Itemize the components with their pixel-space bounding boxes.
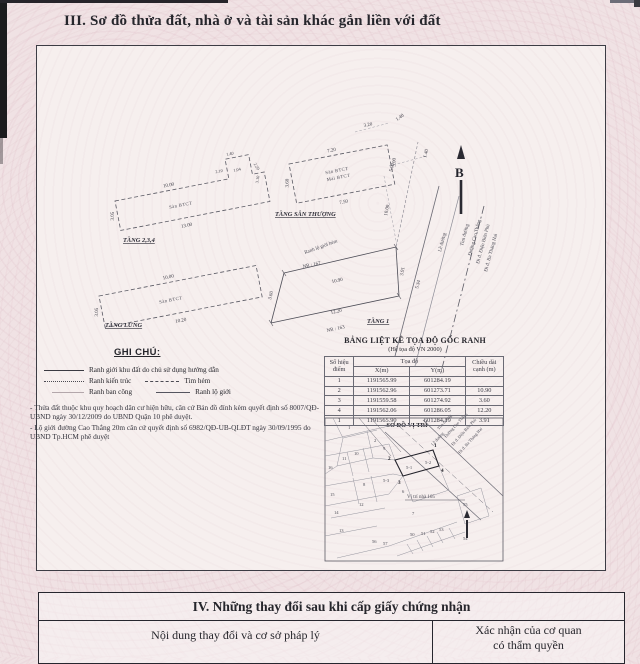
cell-length: 3.60 — [465, 396, 503, 406]
dim-label: 7.20 — [327, 148, 337, 155]
cell-x: 1191562.96 — [354, 386, 410, 396]
north-arrow: B — [455, 145, 465, 214]
plan-san-thuong: 7.20 7.50 3.60 3.00 Sàn BTCT Mái BTCT — [280, 137, 405, 216]
col-header-point: Số hiệu điểm — [325, 357, 354, 377]
material-label: Sàn BTCT — [159, 296, 183, 305]
plan-tang234: 10.00 1.40 2.10 1.04 2.29 3.10 13.00 3.0… — [102, 145, 272, 242]
legend-heading: GHI CHÚ: — [114, 347, 160, 358]
dim-label: 3.05 — [111, 211, 116, 220]
north-letter: B — [455, 165, 464, 180]
cell-point: 1 — [325, 376, 354, 386]
section3-title: III. Sơ đồ thửa đất, nhà ở và tài sản kh… — [64, 13, 484, 30]
scan-edge-top — [0, 0, 228, 3]
confirm-line-2: có thẩm quyền — [433, 638, 624, 653]
map-subject-parcel — [395, 450, 439, 476]
cell-point: 4 — [325, 406, 354, 416]
dim-label: 12.20 — [330, 309, 343, 316]
coordinate-table-subtitle: (Hệ tọa độ VN 2000) — [324, 346, 506, 353]
legend-item-architecture-alley: Ranh kiến trúc Tim hẻm — [44, 377, 324, 385]
legend-label: Ranh lộ giới — [195, 388, 231, 396]
map-point: 4 — [441, 468, 444, 474]
table-row: 3 1191559.58 601274.92 3.60 — [325, 396, 504, 406]
thin-line-sample — [156, 392, 190, 393]
plan-san-thuong-outline — [289, 145, 395, 203]
cell-length: 12.20 — [465, 406, 503, 416]
location-map: SƠ ĐỒ VỊ TRÍ — [325, 411, 503, 561]
map-parcel-number: 12 — [359, 502, 364, 507]
parcel-diagram-canvas: 10.00 1.40 2.10 1.04 2.29 3.10 13.00 3.0… — [37, 46, 605, 570]
scan-corner-mark — [634, 0, 640, 7]
scan-edge-left-fade — [0, 138, 3, 164]
note-row: - Lộ giới đường Cao Thắng 20m căn cứ quy… — [30, 423, 320, 442]
map-parcel-number: 51 — [421, 531, 426, 536]
plan-tang234-name: TẦNG 2,3,4 — [123, 236, 155, 244]
map-curb-label: Lề đường — [430, 430, 445, 446]
cell-y: 601286.05 — [410, 406, 466, 416]
dim-label: 1.40 — [395, 113, 405, 122]
col-header-length: Chiều dài cạnh (m) — [465, 357, 503, 377]
col-header-coords: Tọa độ — [354, 357, 465, 367]
col-header-x: X(m) — [354, 366, 410, 376]
faint-line-sample — [52, 392, 84, 393]
dim-label: 5.00 — [389, 162, 396, 172]
scan-edge-left — [0, 0, 7, 138]
cell-point: 3 — [325, 396, 354, 406]
plan-tang1-name: TẦNG 1 — [367, 317, 389, 325]
legend-item-boundary: Ranh giới khu đất do chủ sử dụng hướng d… — [44, 366, 324, 374]
map-parcel-number: 55 — [463, 502, 468, 507]
dim-label: 3.60 — [268, 290, 275, 300]
dim-label: 13.00 — [181, 223, 193, 230]
map-road — [359, 418, 503, 520]
plan-tang-lung-name: TẦNG LỬNG — [105, 321, 142, 329]
legend-block: Ranh giới khu đất do chủ sử dụng hướng d… — [44, 366, 324, 400]
coordinate-table-title: BẢNG LIỆT KÊ TỌA ĐỘ GỐC RANH — [324, 336, 506, 345]
dim-label: 10.90 — [331, 278, 344, 285]
cell-length: 3.91 — [465, 416, 503, 426]
dim-label: 1.40 — [423, 148, 430, 158]
plan-san-thuong-name: TẦNG SÂN THƯỢNG — [275, 210, 336, 218]
dim-label: 10.00 — [162, 274, 174, 281]
setback-ties — [355, 123, 427, 246]
legend-label: Ranh kiến trúc — [89, 377, 131, 385]
map-parcel-number: 57 — [383, 541, 388, 546]
col-header-y: Y(m) — [410, 366, 466, 376]
parcel-right-edge — [396, 247, 399, 296]
dim-label: 3.91 — [400, 266, 407, 276]
curb-label: Lề đường — [438, 232, 448, 252]
solid-line-sample — [44, 370, 84, 371]
map-parcel-number: 50 — [410, 532, 415, 537]
map-parcel-number: 52 — [430, 529, 435, 534]
cell-y: 601274.92 — [410, 396, 466, 406]
map-parcel-number: 6 — [402, 489, 405, 494]
table-row: 4 1191562.06 601286.05 12.20 — [325, 406, 504, 416]
cell-x: 1191565.90 — [354, 416, 410, 426]
neighbor-house-167: NR : 167 — [302, 261, 321, 270]
dim-label: 3.60 — [285, 178, 290, 187]
north-arrow-head — [457, 145, 465, 159]
dim-label: 5.34 — [415, 279, 422, 289]
cell-x: 1191565.99 — [354, 376, 410, 386]
dim-label: 2.10 — [215, 168, 223, 174]
map-parcel-number: 5-2 — [425, 460, 432, 465]
confirm-line-1: Xác nhận của cơ quan — [433, 623, 624, 638]
section4-box: IV. Những thay đổi sau khi cấp giấy chứn… — [38, 592, 625, 664]
cell-x: 1191559.58 — [354, 396, 410, 406]
section4-title: IV. Những thay đổi sau khi cấp giấy chứn… — [39, 593, 624, 621]
cell-length — [465, 376, 503, 386]
map-parcel-number: 10 — [354, 451, 359, 456]
cell-y: 601284.19 — [410, 416, 466, 426]
note-planning: - Thửa đất thuộc khu quy hoạch dân cư hi… — [30, 403, 320, 422]
legend-label: Ranh ban công — [89, 388, 132, 396]
section4-col-change: Nội dung thay đổi và cơ sở pháp lý — [39, 621, 433, 664]
map-parcel-number: 9 — [383, 446, 386, 451]
parcel-top-edge — [284, 247, 396, 273]
legend-label: Tim hẻm — [184, 377, 210, 385]
dim-label: 3.05 — [95, 307, 100, 316]
map-parcel-number: 16 — [328, 465, 333, 470]
dim-label: 1.04 — [233, 166, 242, 173]
boundary-caption: Ranh lộ giới hẻm — [304, 239, 338, 256]
cell-point: 2 — [325, 386, 354, 396]
map-parcel-number: 11 — [342, 456, 347, 461]
dim-label: 7.50 — [339, 199, 349, 206]
plan-tang234-outline — [111, 152, 270, 230]
alley-boundary-line — [396, 142, 418, 247]
dim-label: 10.00 — [384, 204, 391, 217]
map-parcel-number: 53 — [439, 527, 444, 532]
dashed-line-sample — [145, 381, 179, 382]
map-parcel-number: 15 — [330, 492, 335, 497]
coordinate-table-block: BẢNG LIỆT KÊ TỌA ĐỘ GỐC RANH (Hệ tọa độ … — [324, 336, 506, 426]
parcel-diagram-box: 10.00 1.40 2.10 1.04 2.29 3.10 13.00 3.0… — [36, 45, 606, 571]
material-label: Sàn BTCT — [169, 201, 193, 210]
map-parcel-number: 14 — [334, 510, 339, 515]
dim-label: 10.00 — [163, 182, 175, 189]
map-site-label: Vị trí nhà 165 — [407, 495, 435, 500]
map-parcel-number: 7 — [412, 511, 415, 516]
cell-y: 601273.71 — [410, 386, 466, 396]
map-parcel-number: 5-1 — [406, 465, 413, 470]
map-parcel-number: 13 — [339, 528, 344, 533]
legend-notes: - Thửa đất thuộc khu quy hoạch dân cư hi… — [30, 403, 320, 443]
table-row: 1 1191565.99 601284.19 — [325, 376, 504, 386]
neighbor-house-163: NR : 163 — [326, 325, 345, 334]
map-parcel-number: 5-3 — [383, 478, 390, 483]
scanned-land-certificate-page: { "document": { "section3_title": "III. … — [0, 0, 640, 657]
map-parcel-number: 8 — [363, 482, 366, 487]
coordinate-table: Số hiệu điểm Tọa độ Chiều dài cạnh (m) X… — [324, 356, 504, 426]
map-point: 3 — [398, 480, 401, 486]
table-row: 1 1191565.90 601284.19 3.91 — [325, 416, 504, 426]
table-row: 2 1191562.96 601273.71 10.90 — [325, 386, 504, 396]
cell-x: 1191562.06 — [354, 406, 410, 416]
cell-y: 601284.19 — [410, 376, 466, 386]
legend-label: Ranh giới khu đất do chủ sử dụng hướng d… — [89, 366, 219, 374]
dim-label: 2.29 — [253, 162, 261, 171]
dim-label: 1.40 — [226, 151, 234, 157]
street-center-label: Tim đường — [460, 223, 471, 246]
legend-item-balcony-row: Ranh ban công Ranh lộ giới — [44, 388, 324, 396]
dotted-line-sample — [44, 381, 84, 382]
map-point: 2 — [388, 456, 391, 462]
map-parcel-number: 56 — [372, 539, 377, 544]
cell-length: 10.90 — [465, 386, 503, 396]
section4-col-confirm: Xác nhận của cơ quan có thẩm quyền — [433, 621, 624, 664]
cell-point: 1 — [325, 416, 354, 426]
dim-label: 10.20 — [175, 318, 187, 325]
dim-label: 3.20 — [363, 122, 373, 129]
dim-label: 3.10 — [254, 175, 260, 183]
